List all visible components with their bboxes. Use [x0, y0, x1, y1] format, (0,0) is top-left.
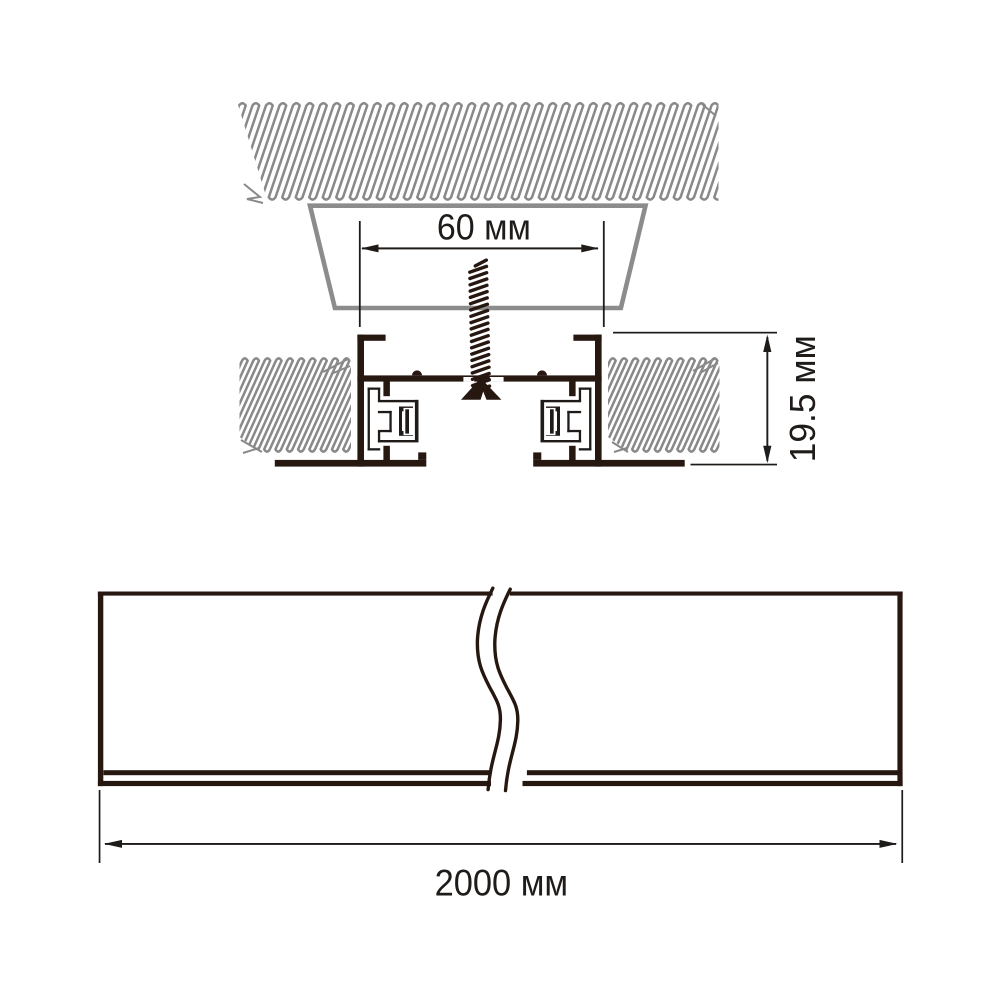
svg-text:2000 мм: 2000 мм — [435, 863, 568, 904]
svg-text:19.5 мм: 19.5 мм — [782, 335, 823, 462]
svg-text:60 мм: 60 мм — [437, 206, 531, 247]
